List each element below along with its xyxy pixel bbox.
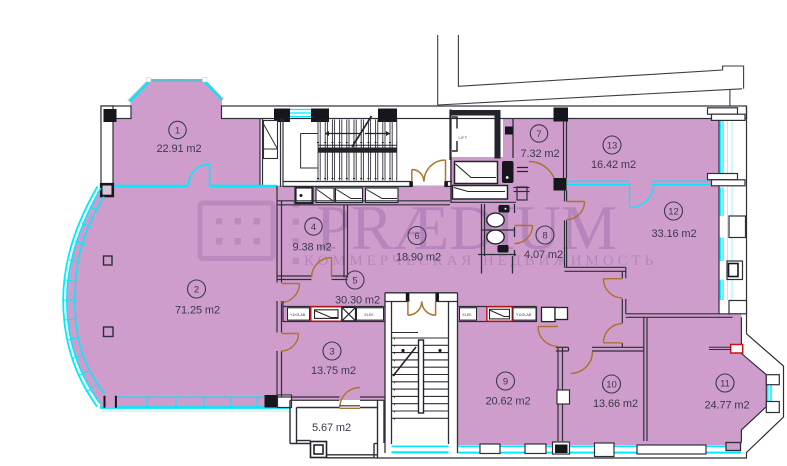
svg-text:13.66 m2: 13.66 m2 [593,398,638,410]
svg-text:6: 6 [414,231,419,242]
svg-text:16.42 m2: 16.42 m2 [591,159,636,171]
svg-text:33.16 m2: 33.16 m2 [651,228,696,240]
svg-text:71.25 m2: 71.25 m2 [175,305,220,317]
svg-text:18.90 m2: 18.90 m2 [396,252,441,264]
svg-text:КОММЕРЧЕСКАЯ НЕДВИЖИМОСТЬ: КОММЕРЧЕСКАЯ НЕДВИЖИМОСТЬ [304,253,657,269]
svg-text:Y.DOLAB: Y.DOLAB [290,313,306,317]
svg-text:24.77 m2: 24.77 m2 [704,400,749,412]
svg-text:ELEK: ELEK [365,313,375,317]
svg-text:ELEK: ELEK [463,313,473,317]
svg-text:Y.DOLAB: Y.DOLAB [516,313,532,317]
svg-text:2: 2 [194,285,199,296]
svg-text:9.38 m2: 9.38 m2 [292,242,331,254]
svg-text:13.75 m2: 13.75 m2 [311,365,356,377]
svg-text:12: 12 [668,207,679,218]
svg-text:30.30 m2: 30.30 m2 [335,295,380,307]
svg-text:1: 1 [175,126,180,137]
svg-text:7.32 m2: 7.32 m2 [520,148,559,160]
svg-text:5: 5 [352,276,357,287]
svg-text:3: 3 [329,347,334,358]
svg-text:5.67 m2: 5.67 m2 [312,422,351,434]
svg-text:LIFT: LIFT [459,136,468,140]
svg-text:8: 8 [542,231,547,242]
svg-text:10: 10 [606,380,617,391]
svg-text:20.62 m2: 20.62 m2 [485,396,530,408]
svg-text:13: 13 [607,141,618,152]
svg-text:9: 9 [503,377,508,388]
svg-text:7: 7 [536,129,541,140]
svg-text:4.07 m2: 4.07 m2 [524,249,563,261]
svg-text:11: 11 [720,379,730,390]
svg-text:22.91 m2: 22.91 m2 [156,143,201,155]
svg-text:4: 4 [311,222,316,233]
